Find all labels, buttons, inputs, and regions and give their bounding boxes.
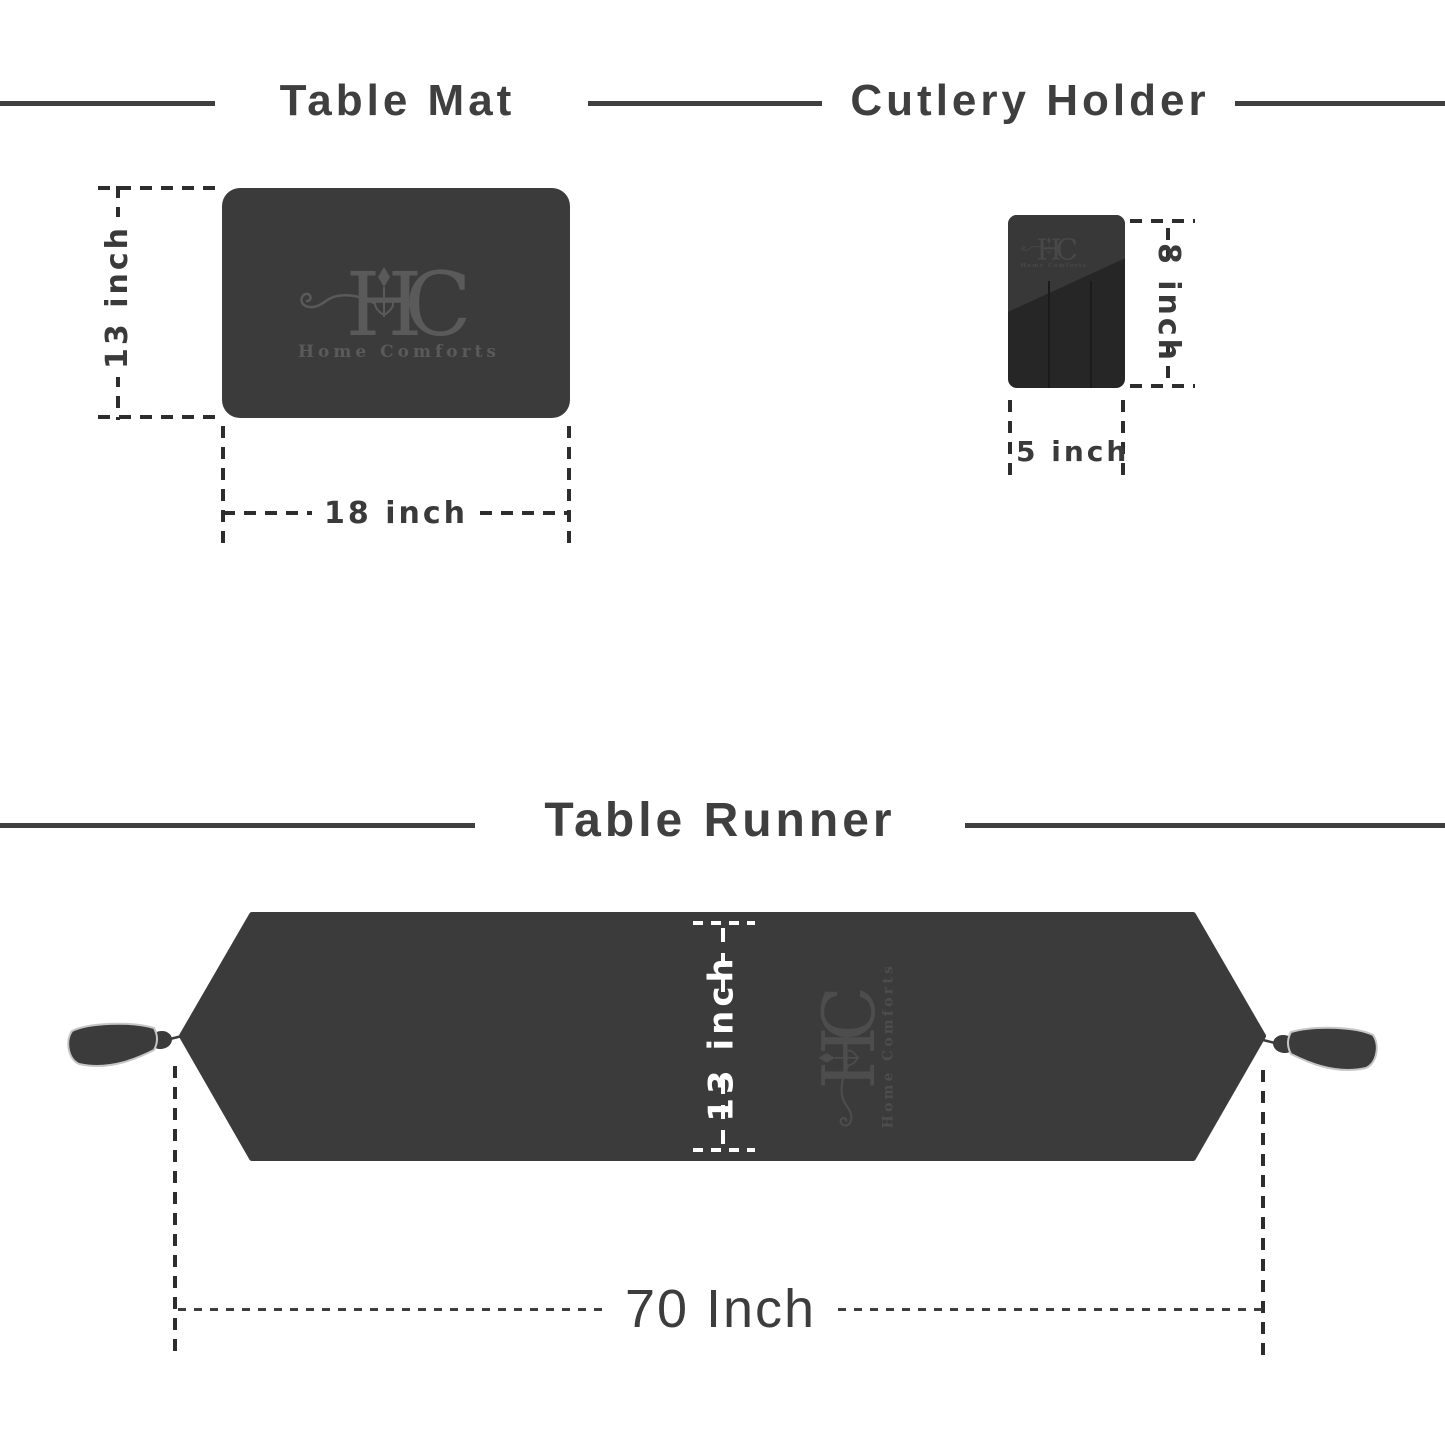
table-mat-swatch — [222, 188, 570, 418]
mat-width-dimension: 18 inch — [223, 496, 569, 530]
brand-logo-on-holder — [1020, 229, 1086, 269]
tassel-icon — [68, 1024, 182, 1066]
runner-length-dimension: 70 Inch — [178, 1278, 1263, 1340]
holder-width-label: 5 inch — [1016, 435, 1129, 468]
table-runner-swatch: 13 inch — [60, 900, 1390, 1170]
runner-width-label: 13 inch — [702, 954, 742, 1121]
holder-height-dimension-line — [1130, 219, 1195, 223]
runner-length-dimension-line — [838, 1308, 1263, 1311]
mat-width-dimension-line — [480, 511, 569, 515]
mat-width-dimension-line — [223, 511, 312, 515]
mat-height-dimension-line — [98, 415, 222, 419]
divider-line — [0, 101, 215, 106]
divider-line — [588, 101, 822, 106]
mat-height-label: 13 inch — [102, 217, 134, 377]
table-mat-title: Table Mat — [225, 76, 570, 126]
cutlery-holder-seam — [1090, 281, 1092, 388]
tassel-icon — [1263, 1028, 1377, 1070]
holder-height-label: 8 inch — [1152, 228, 1184, 378]
cutlery-holder-seam — [1048, 281, 1050, 388]
divider-line — [1235, 101, 1445, 106]
size-chart-canvas: Table Mat Cutlery Holder 13 inch 18 inch… — [0, 0, 1445, 1445]
brand-logo-on-mat — [296, 243, 496, 363]
runner-length-label: 70 Inch — [603, 1278, 838, 1340]
holder-width-dimension: 5 inch — [1010, 434, 1123, 468]
runner-length-dimension-line — [178, 1308, 603, 1311]
cutlery-holder-swatch — [1008, 215, 1125, 388]
cutlery-holder-title: Cutlery Holder — [845, 76, 1215, 126]
runner-length-dimension-line — [173, 1066, 177, 1360]
divider-line — [965, 823, 1445, 828]
divider-line — [0, 823, 475, 828]
table-runner-title: Table Runner — [495, 793, 945, 848]
holder-height-dimension-line — [1130, 384, 1195, 388]
mat-width-label: 18 inch — [324, 496, 468, 531]
